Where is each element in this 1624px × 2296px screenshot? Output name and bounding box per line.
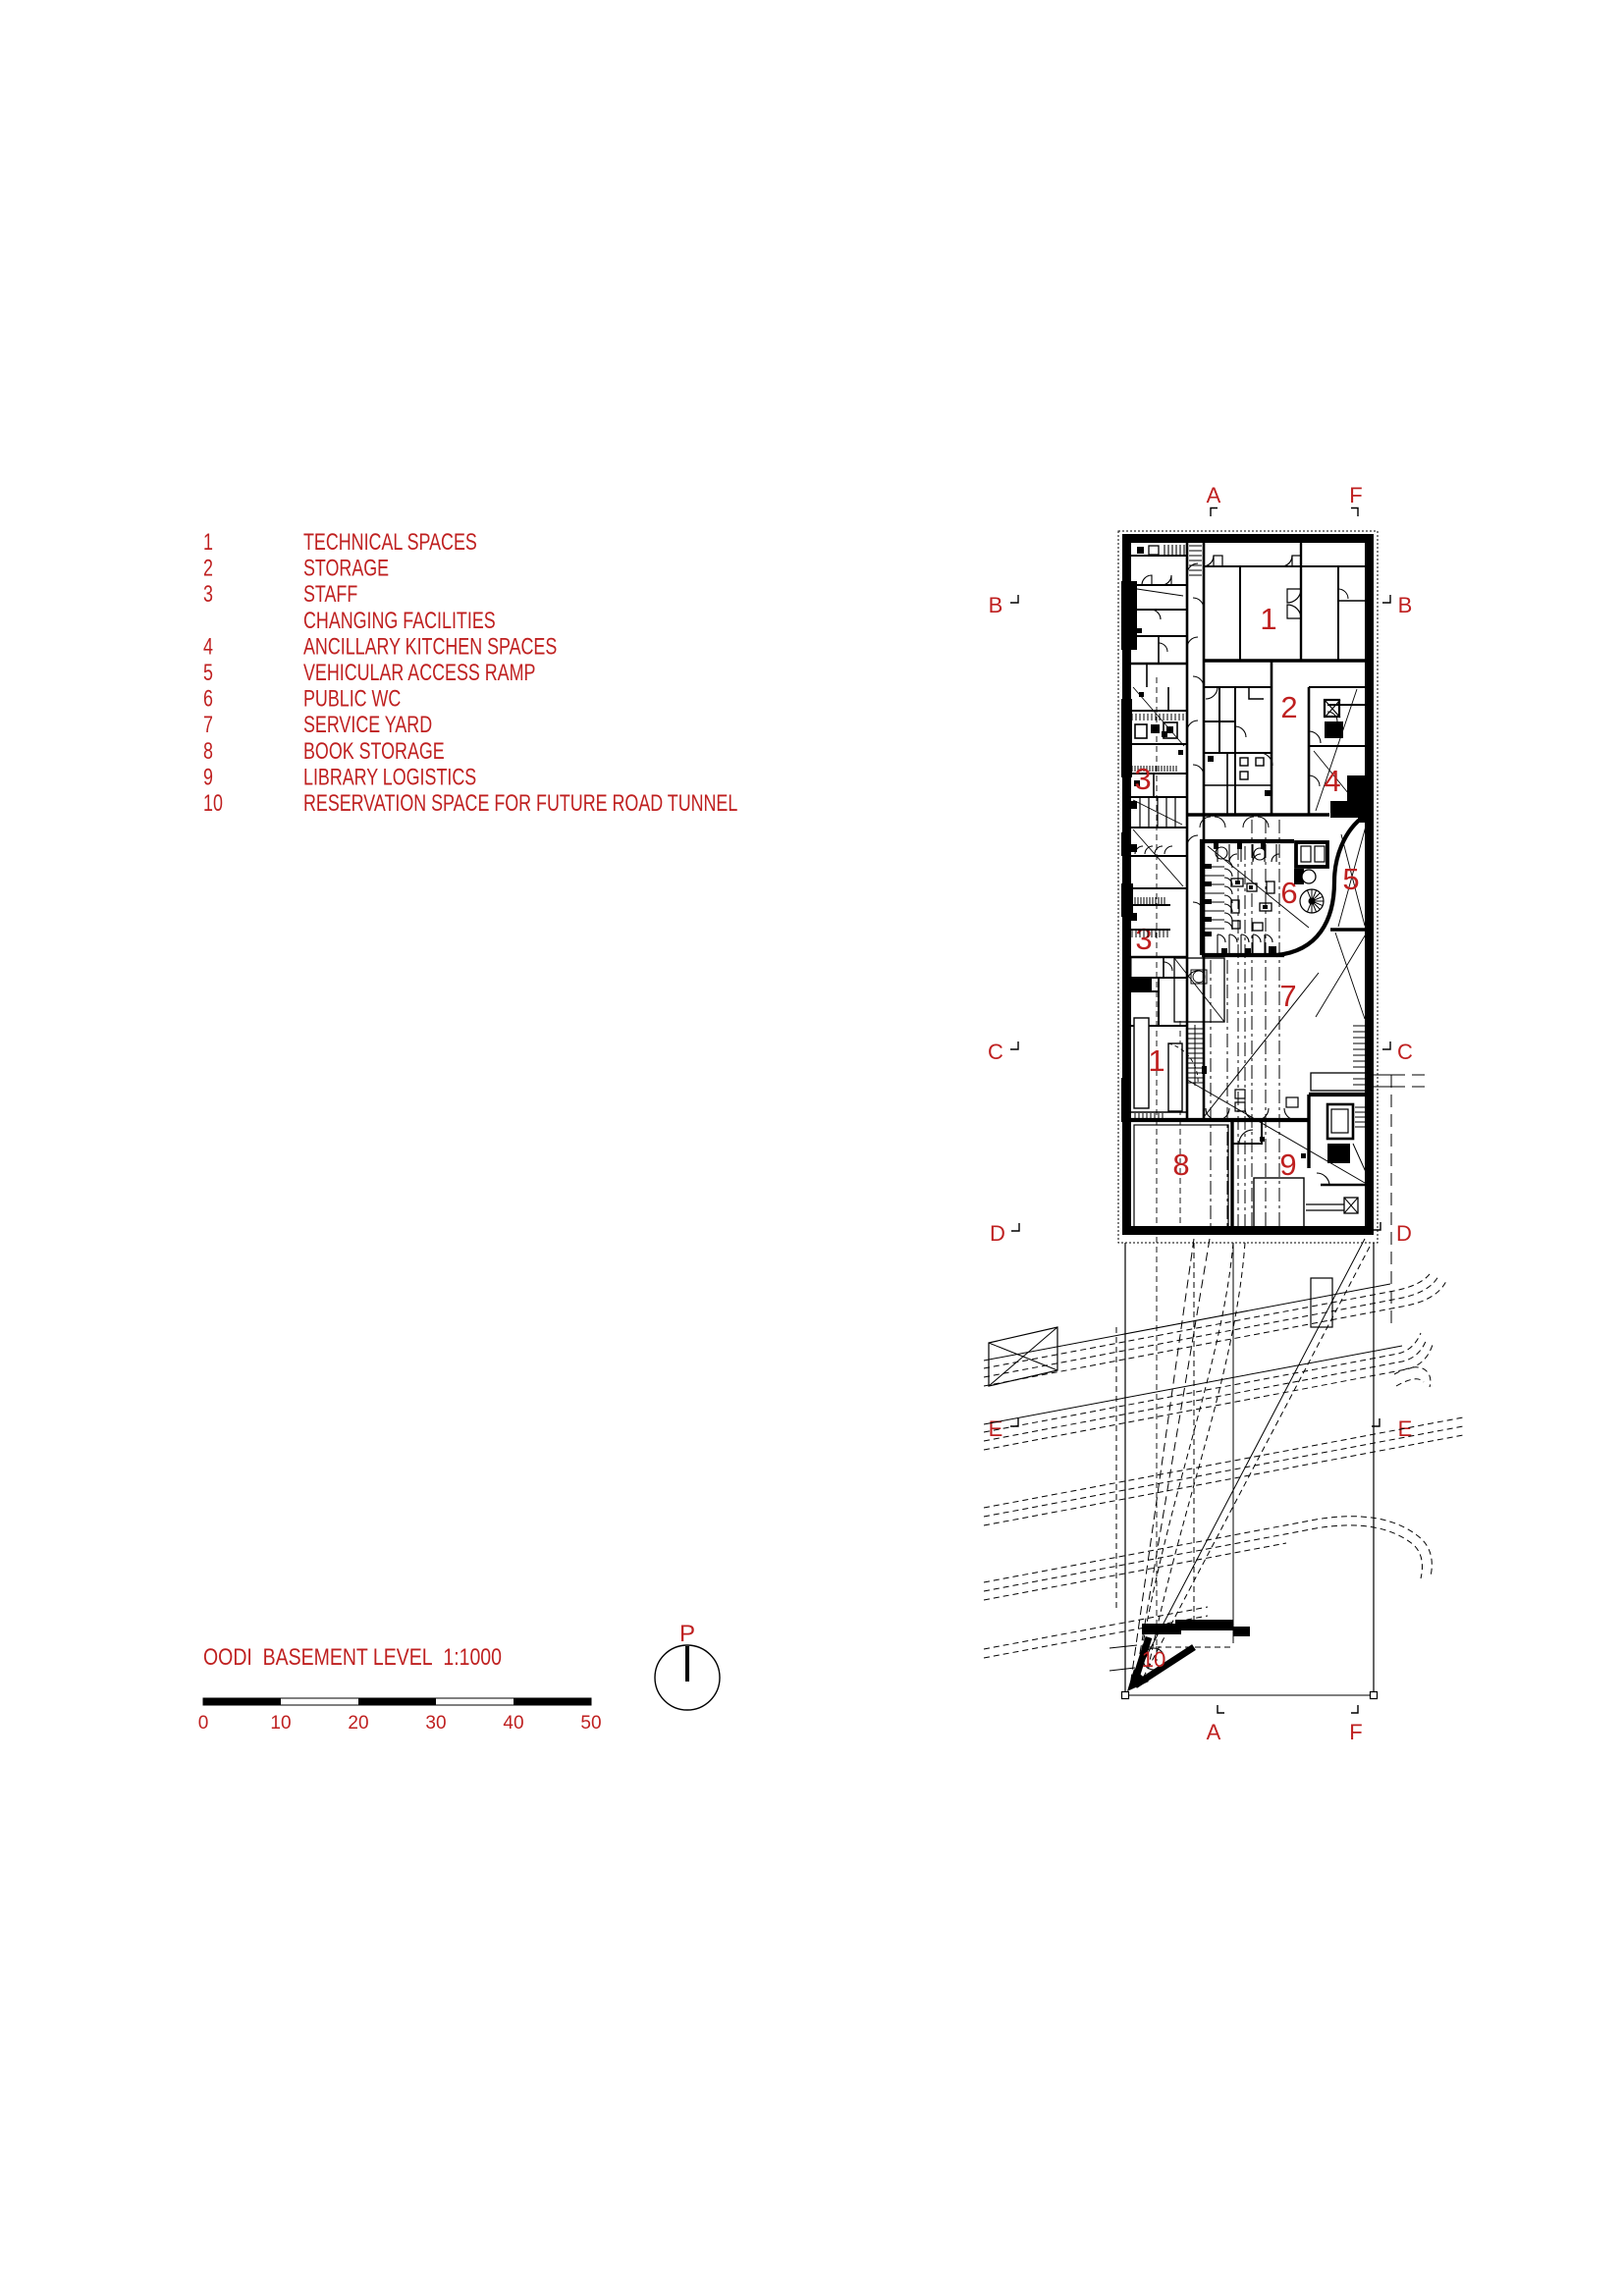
svg-text:10: 10 bbox=[203, 791, 223, 817]
svg-text:E: E bbox=[989, 1416, 1003, 1441]
svg-text:3: 3 bbox=[1134, 762, 1151, 796]
svg-text:3: 3 bbox=[1135, 922, 1152, 956]
svg-text:STAFF: STAFF bbox=[303, 582, 357, 608]
svg-text:7: 7 bbox=[203, 713, 213, 738]
svg-text:5: 5 bbox=[1342, 862, 1359, 896]
svg-text:C: C bbox=[988, 1040, 1003, 1064]
svg-text:9: 9 bbox=[203, 765, 213, 790]
svg-text:F: F bbox=[1349, 483, 1362, 507]
svg-text:C: C bbox=[1397, 1040, 1413, 1064]
svg-text:F: F bbox=[1349, 1720, 1362, 1744]
svg-text:5: 5 bbox=[203, 661, 213, 686]
svg-text:PUBLIC WC: PUBLIC WC bbox=[303, 686, 401, 712]
svg-text:A: A bbox=[1207, 483, 1221, 507]
svg-text:BOOK STORAGE: BOOK STORAGE bbox=[303, 738, 445, 764]
svg-text:1: 1 bbox=[1148, 1043, 1164, 1078]
svg-text:RESERVATION SPACE FOR FUTURE R: RESERVATION SPACE FOR FUTURE ROAD TUNNEL bbox=[303, 791, 737, 817]
svg-text:10: 10 bbox=[1142, 1647, 1165, 1672]
svg-text:D: D bbox=[990, 1221, 1005, 1246]
svg-text:8: 8 bbox=[203, 738, 213, 764]
svg-text:SERVICE YARD: SERVICE YARD bbox=[303, 713, 432, 738]
svg-text:0: 0 bbox=[198, 1713, 209, 1734]
svg-text:VEHICULAR ACCESS RAMP: VEHICULAR ACCESS RAMP bbox=[303, 661, 535, 686]
svg-text:1: 1 bbox=[203, 530, 213, 556]
svg-text:10: 10 bbox=[270, 1713, 291, 1734]
svg-text:P: P bbox=[679, 1621, 695, 1647]
svg-text:2: 2 bbox=[1280, 690, 1297, 724]
svg-text:A: A bbox=[1207, 1720, 1221, 1744]
svg-text:LIBRARY LOGISTICS: LIBRARY LOGISTICS bbox=[303, 765, 476, 790]
svg-text:TECHNICAL SPACES: TECHNICAL SPACES bbox=[303, 530, 477, 556]
svg-text:50: 50 bbox=[580, 1713, 601, 1734]
svg-text:2: 2 bbox=[203, 556, 213, 581]
svg-text:OODI BASEMENT LEVEL 1:1000: OODI BASEMENT LEVEL 1:1000 bbox=[203, 1643, 502, 1670]
svg-text:D: D bbox=[1396, 1221, 1412, 1246]
svg-text:B: B bbox=[989, 593, 1003, 617]
svg-text:6: 6 bbox=[203, 686, 213, 712]
svg-text:30: 30 bbox=[425, 1713, 446, 1734]
svg-text:8: 8 bbox=[1172, 1148, 1189, 1182]
svg-text:E: E bbox=[1398, 1416, 1413, 1441]
svg-text:40: 40 bbox=[503, 1713, 523, 1734]
svg-text:ANCILLARY KITCHEN SPACES: ANCILLARY KITCHEN SPACES bbox=[303, 634, 557, 660]
svg-text:7: 7 bbox=[1279, 979, 1296, 1013]
svg-text:1: 1 bbox=[1260, 602, 1276, 636]
svg-text:9: 9 bbox=[1279, 1148, 1296, 1182]
svg-text:STORAGE: STORAGE bbox=[303, 556, 389, 581]
svg-text:3: 3 bbox=[203, 582, 213, 608]
svg-text:CHANGING FACILITIES: CHANGING FACILITIES bbox=[303, 608, 496, 633]
svg-text:20: 20 bbox=[348, 1713, 368, 1734]
svg-text:B: B bbox=[1398, 593, 1413, 617]
svg-text:4: 4 bbox=[1324, 764, 1340, 798]
svg-text:4: 4 bbox=[203, 634, 213, 660]
